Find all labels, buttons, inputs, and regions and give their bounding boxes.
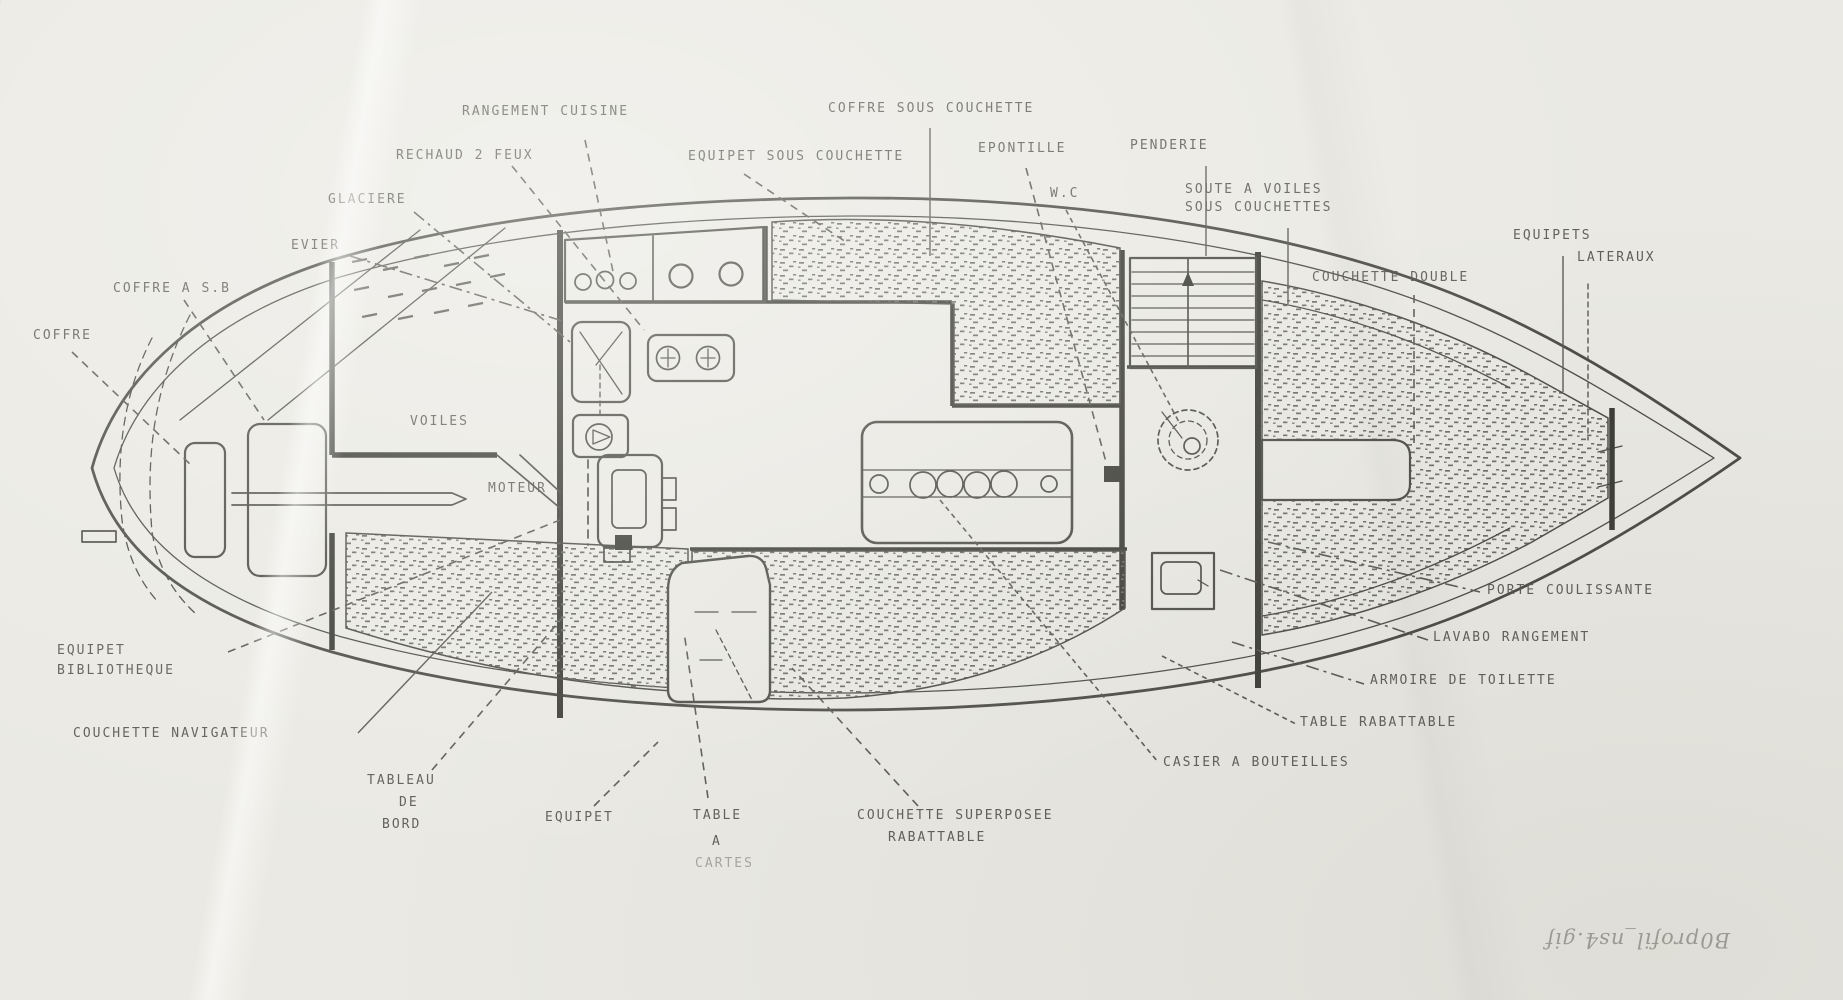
icebox-glaciere [572, 322, 630, 418]
saloon-table [862, 422, 1072, 543]
label-coffre-sous-couchette: COFFRE SOUS COUCHETTE [828, 101, 1034, 116]
galley-counter [565, 227, 765, 302]
chart-table [668, 556, 770, 702]
tiller [82, 493, 466, 542]
label-couchette-superposee-1: COUCHETTE SUPERPOSEE [857, 808, 1054, 823]
label-equipet-bibliotheque-1: EQUIPET [57, 643, 126, 658]
coffre-box [185, 443, 225, 557]
label-coffre: COFFRE [33, 328, 92, 343]
label-couchette-superposee-2: RABATTABLE [888, 830, 986, 845]
sink-evier [573, 415, 628, 457]
label-table-a-cartes-1: TABLE [693, 808, 742, 823]
label-coffre-a-sb: COFFRE A S.B [113, 281, 231, 296]
label-couchette-navigateur: COUCHETTE NAVIGATEUR [73, 726, 270, 741]
label-equipets-lateraux-1: EQUIPETS [1513, 228, 1592, 243]
label-moteur: MOTEUR [488, 481, 547, 496]
berth-quarter-upper [772, 220, 1120, 404]
coffre-sb-box [248, 424, 326, 576]
boat-plan-scan: RANGEMENT CUISINE COFFRE SOUS COUCHETTE … [0, 0, 1843, 1000]
pillar-epontille [1104, 466, 1120, 482]
label-rechaud-2-feux: RECHAUD 2 FEUX [396, 148, 534, 163]
lavabo [1152, 553, 1214, 609]
label-rangement-cuisine: RANGEMENT CUISINE [462, 104, 629, 119]
label-table-a-cartes-3: CARTES [695, 856, 754, 871]
label-tableau-de-bord-3: BORD [382, 817, 421, 832]
label-evier: EVIER [291, 238, 340, 253]
berth-double-forward [1262, 281, 1608, 635]
label-table-a-cartes-2: A [712, 834, 722, 849]
label-equipet-sous-couchette: EQUIPET SOUS COUCHETTE [688, 149, 904, 164]
label-tableau-de-bord-2: DE [399, 795, 419, 810]
label-equipet: EQUIPET [545, 810, 614, 825]
label-table-rabattable: TABLE RABATTABLE [1300, 715, 1457, 730]
stove-rechaud [648, 335, 734, 381]
label-tableau-de-bord-1: TABLEAU [367, 773, 436, 788]
label-voiles: VOILES [410, 414, 469, 429]
penderie-locker [1130, 258, 1256, 368]
label-porte-coulissante: PORTE COULISSANTE [1487, 583, 1654, 598]
label-equipets-lateraux-2: LATERAUX [1577, 250, 1656, 265]
scan-filename-caption: B0profil_ns4.gif [1490, 928, 1730, 952]
sail-locker [352, 255, 505, 319]
label-glaciere: GLACIERE [328, 192, 407, 207]
label-wc: W.C [1050, 186, 1079, 201]
portlight [720, 263, 743, 286]
galley [565, 227, 765, 457]
label-casier-a-bouteilles: CASIER A BOUTEILLES [1163, 755, 1350, 770]
boat-plan-drawing [0, 0, 1843, 1000]
label-equipet-bibliotheque-2: BIBLIOTHEQUE [57, 663, 175, 678]
portlight [670, 265, 693, 288]
label-lavabo-rangement: LAVABO RANGEMENT [1433, 630, 1590, 645]
label-epontille: EPONTILLE [978, 141, 1066, 156]
label-soute-a-voiles-2: SOUS COUCHETTES [1185, 200, 1332, 215]
label-soute-a-voiles-1: SOUTE A VOILES [1185, 182, 1323, 197]
label-armoire-de-toilette: ARMOIRE DE TOILETTE [1370, 673, 1557, 688]
label-couchette-double: COUCHETTE DOUBLE [1312, 270, 1469, 285]
bottle-rack [870, 471, 1057, 498]
label-penderie: PENDERIE [1130, 138, 1209, 153]
